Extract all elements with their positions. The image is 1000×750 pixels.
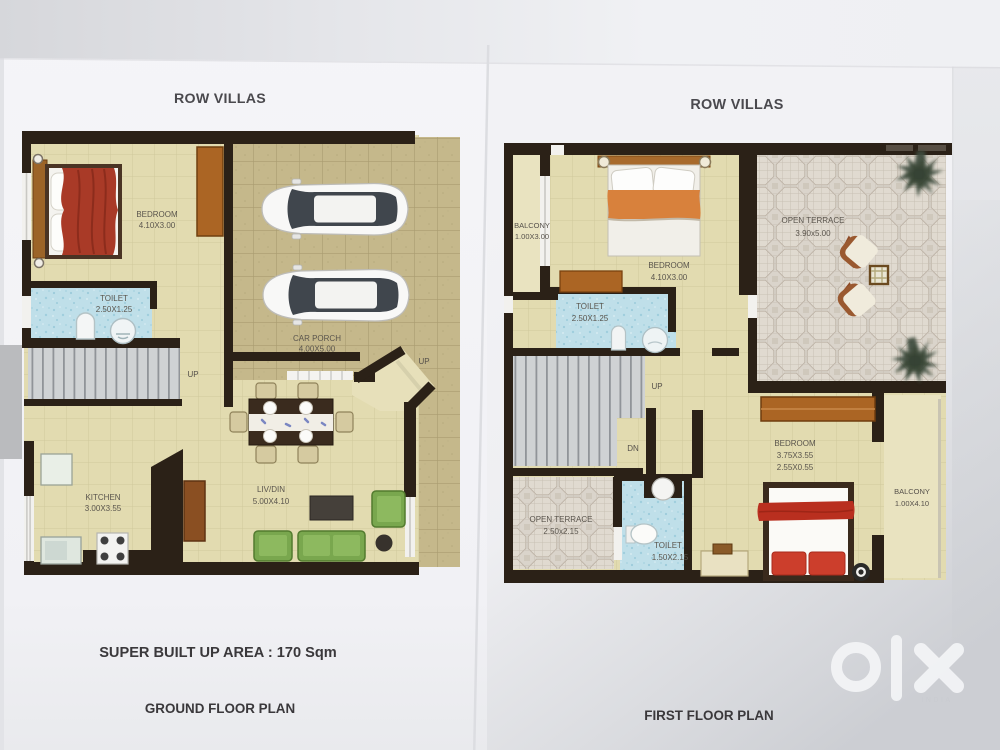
svg-text:KITCHEN: KITCHEN bbox=[85, 493, 120, 502]
svg-text:LIV/DIN: LIV/DIN bbox=[257, 485, 285, 494]
svg-text:ROW VILLAS: ROW VILLAS bbox=[690, 97, 783, 113]
svg-text:UP: UP bbox=[187, 370, 198, 379]
svg-text:BEDROOM: BEDROOM bbox=[648, 261, 690, 270]
svg-text:4.10X3.00: 4.10X3.00 bbox=[139, 221, 176, 230]
svg-text:5.00X4.10: 5.00X4.10 bbox=[253, 497, 290, 506]
svg-text:2.50X1.25: 2.50X1.25 bbox=[572, 314, 609, 323]
svg-text:OPEN TERRACE: OPEN TERRACE bbox=[782, 216, 845, 225]
svg-text:CAR PORCH: CAR PORCH bbox=[293, 334, 341, 343]
svg-text:TOILET: TOILET bbox=[576, 302, 604, 311]
svg-text:2.55X0.55: 2.55X0.55 bbox=[777, 463, 814, 472]
svg-text:BALCONY: BALCONY bbox=[514, 221, 550, 230]
svg-text:TOILET: TOILET bbox=[100, 294, 128, 303]
svg-text:BEDROOM: BEDROOM bbox=[136, 210, 178, 219]
svg-text:UP: UP bbox=[651, 382, 662, 391]
svg-text:OPEN TERRACE: OPEN TERRACE bbox=[530, 515, 593, 524]
svg-text:3.75X3.55: 3.75X3.55 bbox=[777, 451, 814, 460]
svg-text:ROW VILLAS: ROW VILLAS bbox=[174, 91, 266, 107]
svg-text:1.50X2.15: 1.50X2.15 bbox=[652, 553, 689, 562]
svg-text:3.90x5.00: 3.90x5.00 bbox=[795, 229, 831, 238]
svg-text:DN: DN bbox=[627, 444, 639, 453]
svg-text:4.00X5.00: 4.00X5.00 bbox=[299, 345, 336, 354]
svg-text:GROUND FLOOR PLAN: GROUND FLOOR PLAN bbox=[145, 701, 295, 716]
svg-text:TOILET: TOILET bbox=[654, 541, 682, 550]
svg-text:INDIA: INDIA bbox=[921, 697, 952, 704]
svg-text:3.00X3.55: 3.00X3.55 bbox=[85, 504, 122, 513]
svg-text:2.50x2.15: 2.50x2.15 bbox=[543, 527, 579, 536]
svg-text:BALCONY: BALCONY bbox=[894, 487, 930, 496]
svg-text:UP: UP bbox=[418, 357, 429, 366]
svg-text:BEDROOM: BEDROOM bbox=[774, 439, 816, 448]
svg-text:2.50X1.25: 2.50X1.25 bbox=[96, 305, 133, 314]
svg-text:1.00X4.10: 1.00X4.10 bbox=[895, 499, 929, 508]
svg-text:1.00X3.00: 1.00X3.00 bbox=[515, 232, 549, 241]
svg-text:SUPER BUILT UP AREA : 170 Sqm: SUPER BUILT UP AREA : 170 Sqm bbox=[99, 645, 337, 661]
svg-text:4.10X3.00: 4.10X3.00 bbox=[651, 273, 688, 282]
svg-text:FIRST FLOOR PLAN: FIRST FLOOR PLAN bbox=[644, 708, 773, 723]
